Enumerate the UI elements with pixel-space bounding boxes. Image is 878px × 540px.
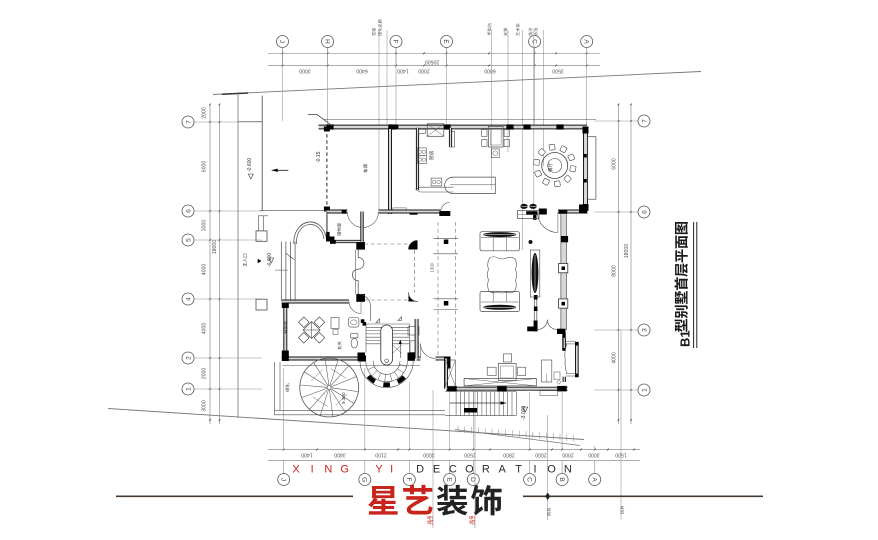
svg-text:A: A xyxy=(590,477,597,482)
svg-text:6: 6 xyxy=(185,209,192,213)
svg-text:6: 6 xyxy=(641,210,648,214)
svg-text:O: O xyxy=(547,464,556,476)
svg-text:I: I xyxy=(533,464,536,476)
svg-text:18000: 18000 xyxy=(212,240,218,255)
svg-text:3000: 3000 xyxy=(299,68,311,74)
svg-text:-0.600: -0.600 xyxy=(247,158,253,172)
svg-text:3000: 3000 xyxy=(202,400,208,412)
svg-text:5: 5 xyxy=(185,238,192,242)
svg-text:1400: 1400 xyxy=(397,68,409,74)
svg-text:18000: 18000 xyxy=(624,244,630,259)
svg-text:N: N xyxy=(324,464,332,476)
svg-text:3: 3 xyxy=(641,328,648,332)
svg-text:F: F xyxy=(392,40,399,44)
svg-text:2000: 2000 xyxy=(202,107,208,119)
svg-text:B: B xyxy=(558,477,565,481)
svg-text:-0.15: -0.15 xyxy=(316,151,322,163)
svg-text:2: 2 xyxy=(185,356,192,360)
svg-text:T: T xyxy=(515,464,522,476)
svg-text:6000: 6000 xyxy=(612,158,618,170)
svg-text:4000: 4000 xyxy=(202,264,208,276)
svg-text:6000: 6000 xyxy=(484,68,496,74)
svg-text:1: 1 xyxy=(185,387,192,391)
svg-text:N: N xyxy=(564,464,572,476)
svg-text:3500: 3500 xyxy=(552,68,564,74)
svg-text:J: J xyxy=(279,478,286,481)
svg-text:2800: 2800 xyxy=(503,452,515,458)
svg-text:2500: 2500 xyxy=(464,452,476,458)
svg-text:H: H xyxy=(323,39,330,44)
svg-text:F: F xyxy=(405,478,412,482)
svg-text:A: A xyxy=(582,39,589,44)
svg-text:-3.000: -3.000 xyxy=(521,406,527,420)
svg-text:3000: 3000 xyxy=(202,220,208,232)
svg-text:O: O xyxy=(465,464,474,476)
svg-text:E: E xyxy=(442,39,449,44)
svg-text:4000: 4000 xyxy=(202,323,208,335)
svg-text:I: I xyxy=(311,464,314,476)
svg-text:2100: 2100 xyxy=(375,452,387,458)
svg-text:2000: 2000 xyxy=(535,452,547,458)
svg-text:7: 7 xyxy=(185,120,192,124)
svg-text:8000: 8000 xyxy=(612,265,618,277)
svg-text:E: E xyxy=(445,477,452,482)
svg-text:R: R xyxy=(482,464,490,476)
svg-text:2000: 2000 xyxy=(202,368,208,380)
svg-text:4: 4 xyxy=(185,297,192,301)
svg-text:G: G xyxy=(340,464,349,476)
svg-text:C: C xyxy=(449,464,457,476)
svg-text:A: A xyxy=(499,464,507,476)
svg-text:3400: 3400 xyxy=(334,452,346,458)
svg-text:-0.600: -0.600 xyxy=(267,253,273,267)
svg-text:20500: 20500 xyxy=(425,59,440,65)
svg-text:E: E xyxy=(433,464,440,476)
svg-text:Y: Y xyxy=(375,464,383,476)
svg-text:2000: 2000 xyxy=(562,452,574,458)
svg-text:B1: B1 xyxy=(678,330,693,347)
svg-text:9.300: 9.300 xyxy=(341,392,346,404)
svg-text:1: 1 xyxy=(641,388,648,392)
svg-text:3000: 3000 xyxy=(588,452,600,458)
svg-text:I: I xyxy=(390,464,393,476)
svg-text:X: X xyxy=(292,464,300,476)
svg-text:G: G xyxy=(361,477,368,482)
svg-text:1300: 1300 xyxy=(430,262,435,272)
svg-text:2000: 2000 xyxy=(418,68,430,74)
svg-text:1400: 1400 xyxy=(301,452,313,458)
svg-text:6000: 6000 xyxy=(202,161,208,173)
svg-text:7: 7 xyxy=(641,119,648,123)
svg-text:D: D xyxy=(416,464,424,476)
svg-text:4000: 4000 xyxy=(612,352,618,364)
svg-text:6400: 6400 xyxy=(356,68,368,74)
svg-text:J: J xyxy=(278,40,285,43)
svg-text:C: C xyxy=(525,477,532,482)
